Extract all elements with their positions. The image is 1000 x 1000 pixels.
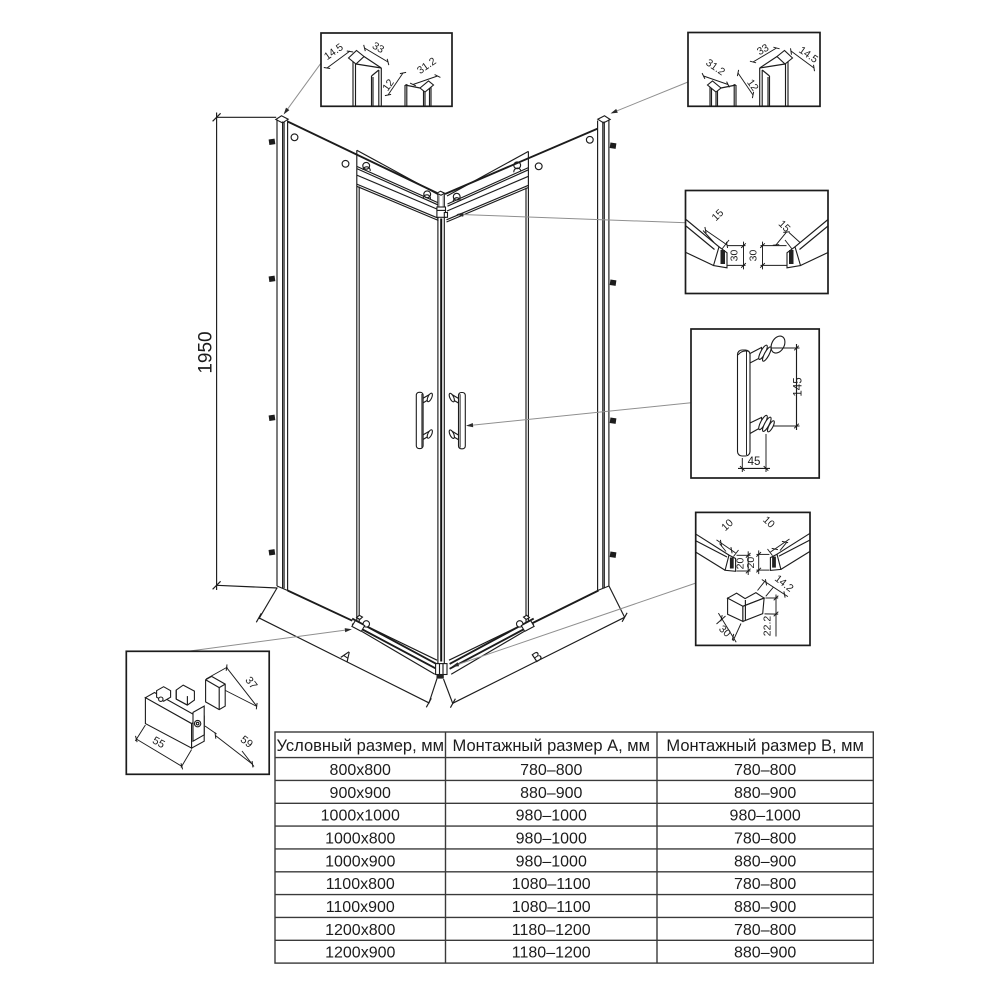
svg-text:780–800: 780–800 [520,762,582,779]
svg-text:980–1000: 980–1000 [516,831,587,848]
svg-text:780–800: 780–800 [734,831,796,848]
svg-text:1180–1200: 1180–1200 [512,922,591,939]
svg-text:1000х900: 1000х900 [325,853,395,870]
svg-text:880–900: 880–900 [734,853,796,870]
svg-text:1080–1100: 1080–1100 [512,876,591,893]
svg-text:900х900: 900х900 [330,785,391,802]
svg-text:880–900: 880–900 [734,899,796,916]
svg-text:1180–1200: 1180–1200 [512,945,591,962]
svg-text:1200х800: 1200х800 [325,922,395,939]
svg-text:20: 20 [745,557,757,569]
svg-text:880–900: 880–900 [734,945,796,962]
svg-text:1000х1000: 1000х1000 [321,808,400,825]
svg-text:145: 145 [793,377,805,396]
svg-text:Монтажный размер В, мм: Монтажный размер В, мм [666,737,863,755]
svg-text:1000х800: 1000х800 [325,831,395,848]
svg-text:780–800: 780–800 [734,762,796,779]
svg-text:780–800: 780–800 [734,876,796,893]
svg-text:1200х900: 1200х900 [325,945,395,962]
svg-text:Условный размер, мм: Условный размер, мм [277,737,444,755]
svg-text:780–800: 780–800 [734,922,796,939]
svg-text:1080–1100: 1080–1100 [512,899,591,916]
svg-text:45: 45 [748,456,761,468]
svg-text:1950: 1950 [196,331,217,373]
svg-text:22.2: 22.2 [762,616,774,637]
svg-text:1100х900: 1100х900 [326,899,395,916]
svg-text:30: 30 [729,250,741,262]
svg-text:980–1000: 980–1000 [730,808,801,825]
svg-text:1100х800: 1100х800 [326,876,395,893]
svg-text:880–900: 880–900 [520,785,582,802]
svg-text:880–900: 880–900 [734,785,796,802]
svg-text:30: 30 [748,250,760,262]
svg-text:980–1000: 980–1000 [516,853,587,870]
svg-text:980–1000: 980–1000 [516,808,587,825]
svg-text:Монтажный размер А, мм: Монтажный размер А, мм [453,737,650,755]
svg-text:800х800: 800х800 [330,762,391,779]
